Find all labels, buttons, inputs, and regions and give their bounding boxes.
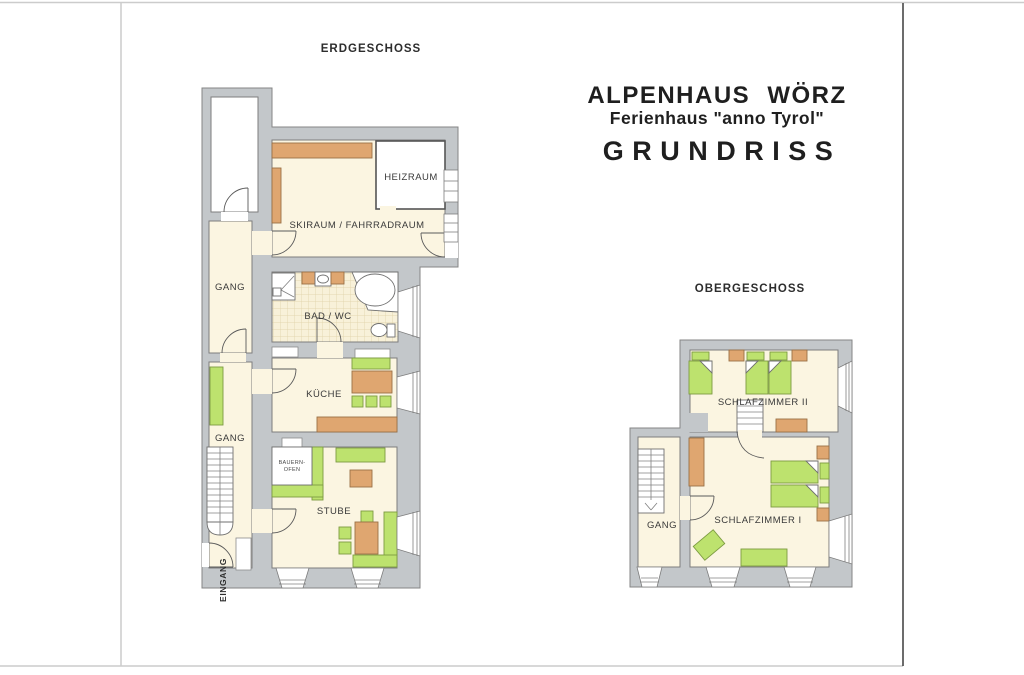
title-block: ALPENHAUS WÖRZ Ferienhaus "anno Tyrol" G…	[587, 82, 846, 166]
stube-table	[355, 522, 378, 554]
kueche-label: KÜCHE	[306, 389, 342, 400]
stube-bench-top	[336, 448, 385, 462]
cabinet-entrance	[236, 538, 251, 570]
og-gang-staircase	[638, 449, 664, 513]
shower	[272, 273, 295, 300]
bauernofen: BAUERN- OFEN	[272, 447, 323, 500]
floorplan-page: ALPENHAUS WÖRZ Ferienhaus "anno Tyrol" G…	[0, 0, 1024, 675]
upper-floor-plan: OBERGESCHOSS	[630, 283, 852, 587]
eg-staircase	[207, 447, 233, 535]
window-kueche-right	[397, 371, 420, 414]
title-grundriss: GRUNDRISS	[603, 136, 842, 166]
schlafzimmer1-label: SCHLAFZIMMER I	[714, 515, 801, 526]
stube-stool	[361, 511, 373, 522]
kitchen-table	[352, 371, 392, 393]
floorplan-drawing: ALPENHAUS WÖRZ Ferienhaus "anno Tyrol" G…	[0, 0, 1024, 675]
page-frame	[0, 3, 1024, 667]
bauernofen-label-1: BAUERN-	[279, 460, 306, 466]
window-sz1-bottom-left	[706, 567, 740, 587]
skiraum-label: SKIRAUM / FAHRRADRAUM	[289, 220, 424, 231]
window-sz1-right	[829, 514, 852, 564]
schlafzimmer2-label: SCHLAFZIMMER II	[718, 397, 808, 408]
stube-label: STUBE	[317, 506, 351, 517]
gang-upper-label: GANG	[215, 282, 245, 293]
sz2-dresser	[776, 419, 807, 432]
window-stube-bottom-right	[351, 568, 384, 588]
og-wall-stub	[687, 413, 708, 432]
niche-above-ofen	[282, 438, 302, 447]
og-gang-label: GANG	[647, 520, 677, 531]
kitchen-bench	[352, 358, 390, 369]
window-skiraum-right	[444, 214, 458, 242]
heizraum-door-gap	[380, 206, 396, 211]
bad-label: BAD / WC	[304, 311, 351, 322]
eingang-label: EINGANG	[218, 558, 228, 602]
sz1-wardrobe	[689, 438, 704, 486]
bauernofen-label-2: OFEN	[284, 467, 300, 473]
sz1-bench	[741, 549, 787, 566]
vanity-sink	[302, 272, 344, 286]
ground-floor-plan: ERDGESCHOSS	[202, 43, 458, 602]
title-house-name: ALPENHAUS WÖRZ	[587, 82, 846, 109]
title-subtitle: Ferienhaus "anno Tyrol"	[610, 108, 824, 128]
ground-floor-heading: ERDGESCHOSS	[321, 43, 421, 55]
sz2-single-bed	[689, 352, 712, 394]
window-heizraum-right	[444, 170, 458, 202]
stube-side-table	[350, 470, 372, 487]
kitchen-counter	[317, 417, 397, 432]
window-sz2-right	[838, 361, 852, 413]
window-sz1-bottom-right	[784, 567, 816, 587]
gang-lower-label: GANG	[215, 433, 245, 444]
room-store-north	[211, 97, 258, 212]
niche-bad-kueche	[272, 347, 298, 357]
niche-kueche-top	[355, 349, 390, 358]
window-stube-bottom-left	[276, 568, 309, 588]
kitchen-chairs	[352, 396, 391, 407]
window-bad-right	[398, 285, 420, 338]
heizraum-label: HEIZRAUM	[384, 172, 438, 183]
hall-wardrobe	[210, 367, 223, 425]
window-stube-right	[397, 511, 420, 556]
upper-floor-heading: OBERGESCHOSS	[695, 283, 805, 295]
toilet	[371, 324, 395, 338]
